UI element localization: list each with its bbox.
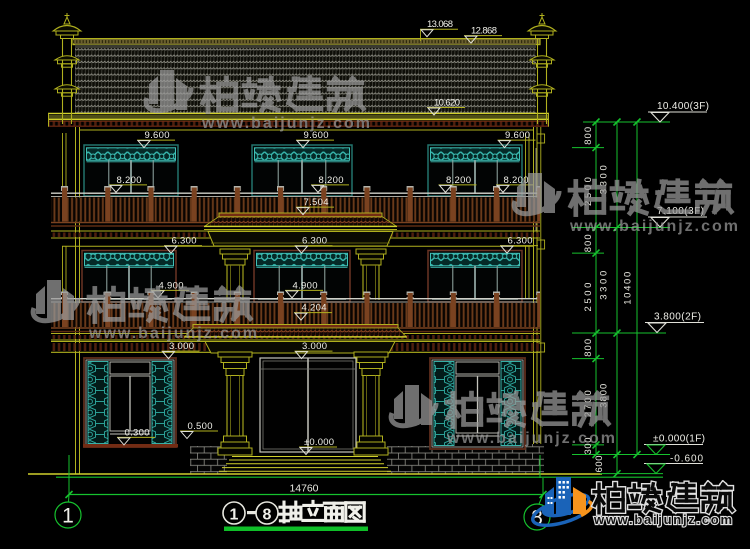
svg-text:800: 800: [583, 234, 594, 252]
svg-text:0.500: 0.500: [188, 421, 213, 432]
svg-text:±0.000(1F): ±0.000(1F): [653, 434, 705, 445]
svg-text:8: 8: [263, 507, 272, 524]
svg-text:9.600: 9.600: [505, 130, 530, 141]
svg-text:600: 600: [594, 456, 605, 473]
svg-text:1: 1: [230, 507, 239, 524]
svg-text:10.400(3F): 10.400(3F): [657, 101, 709, 112]
svg-text:1: 1: [62, 505, 74, 528]
svg-text:800: 800: [583, 127, 594, 145]
svg-text:4.900: 4.900: [293, 280, 318, 291]
svg-text:6.300: 6.300: [302, 236, 327, 247]
svg-text:8.200: 8.200: [117, 175, 142, 186]
svg-text:12.868: 12.868: [471, 26, 497, 37]
svg-text:14760: 14760: [290, 483, 319, 495]
svg-text:13.068: 13.068: [427, 19, 453, 30]
svg-text:7.504: 7.504: [304, 197, 329, 208]
svg-text:8.200: 8.200: [446, 175, 471, 186]
svg-text:8.200: 8.200: [319, 175, 344, 186]
svg-text:-0.600: -0.600: [670, 454, 703, 465]
svg-text:3.800(2F): 3.800(2F): [654, 312, 701, 323]
svg-text:10400: 10400: [623, 272, 634, 305]
svg-text:3.000: 3.000: [302, 341, 327, 352]
svg-text:±0.000: ±0.000: [304, 437, 334, 448]
svg-text:3.000: 3.000: [169, 341, 194, 352]
svg-text:10.620: 10.620: [434, 97, 460, 108]
svg-text:6.300: 6.300: [508, 236, 533, 247]
svg-text:4.204: 4.204: [302, 303, 327, 314]
svg-text:800: 800: [583, 339, 594, 357]
svg-text:6.300: 6.300: [172, 236, 197, 247]
svg-text:0.300: 0.300: [125, 427, 150, 438]
svg-text:9.600: 9.600: [145, 130, 170, 141]
